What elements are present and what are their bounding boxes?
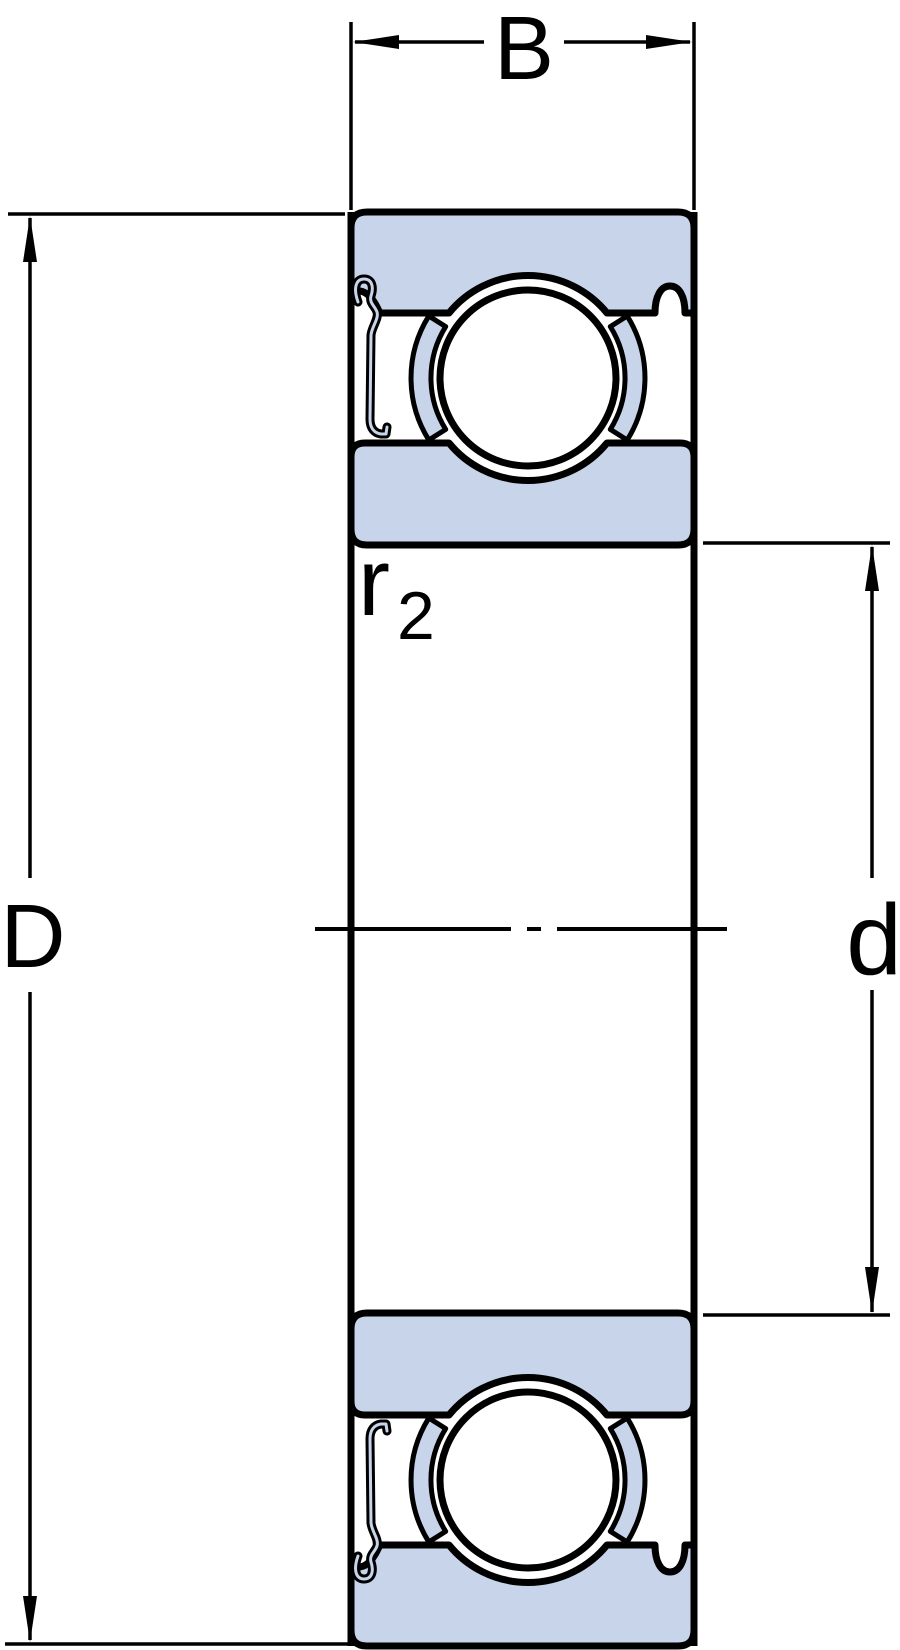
arrowhead-left-icon	[353, 35, 399, 49]
bearing-body	[315, 212, 727, 1646]
dimension-width-B: B	[351, 0, 694, 210]
label-bore-diameter-d: d	[846, 884, 900, 996]
arrowhead-up-icon	[865, 545, 879, 591]
bearing-section-half-mirrored	[351, 1313, 694, 1646]
dimension-bore-diameter-d: d	[703, 543, 900, 1315]
label-r: r	[358, 529, 390, 636]
ball	[440, 290, 616, 466]
arrowhead-right-icon	[646, 35, 692, 49]
bearing-section-half	[351, 212, 694, 545]
arrowhead-down-icon	[865, 1267, 879, 1313]
arrowhead-up-icon	[23, 216, 37, 262]
dimension-outer-diameter-D: D	[1, 214, 349, 1644]
bearing-diagram: B D d r 2	[0, 0, 900, 1650]
label-width-B: B	[494, 0, 554, 99]
bearing-cross-section-canvas: B D d r 2	[0, 0, 900, 1650]
label-r-subscript: 2	[397, 578, 435, 654]
arrowhead-down-icon	[23, 1596, 37, 1642]
label-outer-diameter-D: D	[1, 887, 66, 987]
